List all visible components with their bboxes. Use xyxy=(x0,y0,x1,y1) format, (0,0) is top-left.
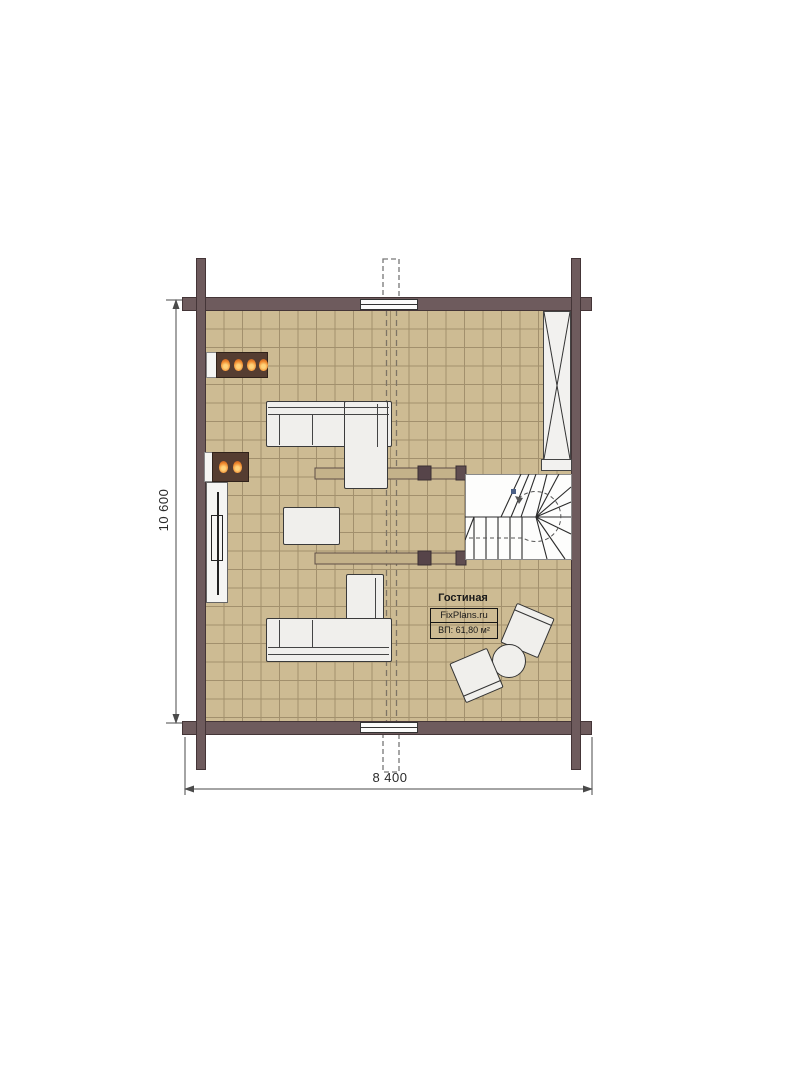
flame-icon xyxy=(247,359,256,371)
flame-icon xyxy=(259,359,268,371)
tv-stand xyxy=(211,515,223,561)
flame-icon xyxy=(233,461,242,473)
arrow-up xyxy=(173,299,180,309)
arrow-down xyxy=(173,714,180,724)
stair-walk-start-marker xyxy=(511,489,516,494)
wardrobe xyxy=(543,311,571,460)
arrow-right xyxy=(583,786,593,793)
staircase xyxy=(465,474,572,560)
window-top xyxy=(360,299,418,310)
flame-icon xyxy=(234,359,243,371)
dimension-label-horizontal: 8 400 xyxy=(360,770,420,786)
wardrobe-shelf xyxy=(541,459,572,471)
arrow-left xyxy=(184,786,194,793)
dimension-label-vertical: 10 600 xyxy=(156,480,172,540)
sofa-cushion-divider xyxy=(312,620,313,647)
tv-unit xyxy=(206,482,228,603)
wall-right xyxy=(571,258,581,770)
room-area-label: ВП: 61,80 м² xyxy=(431,623,497,638)
coffee-table xyxy=(283,507,340,545)
corner-sofa-bottom-body xyxy=(266,618,392,662)
flame-icon xyxy=(219,461,228,473)
sofa-backrest-lines xyxy=(268,647,389,655)
sofa-armrest-line xyxy=(375,578,376,618)
floor-plan-canvas: Гостиная FixPlans.ru ВП: 61,80 м² 10 600… xyxy=(0,0,792,1080)
window-pane xyxy=(361,304,417,305)
room-info-box: FixPlans.ru ВП: 61,80 м² xyxy=(430,608,498,639)
wardrobe-cross xyxy=(544,312,570,459)
fireplace-large xyxy=(216,352,268,378)
window-pane xyxy=(361,727,417,728)
sofa-armrest-divider xyxy=(279,620,280,647)
sofa-backrest-lines xyxy=(268,407,389,415)
room-name-label: Гостиная xyxy=(425,592,501,604)
brand-label: FixPlans.ru xyxy=(431,609,497,623)
sofa-armrest-divider xyxy=(279,415,280,445)
chimney-dashed-box-bottom xyxy=(383,734,399,772)
wall-left xyxy=(196,258,206,770)
chimney-dashed-box-top xyxy=(383,259,399,301)
fireplace-small xyxy=(212,452,249,482)
window-bottom xyxy=(360,722,418,733)
flame-icon xyxy=(221,359,230,371)
dimension-line-horizontal xyxy=(185,737,592,795)
sofa-cushion-divider xyxy=(312,415,313,445)
